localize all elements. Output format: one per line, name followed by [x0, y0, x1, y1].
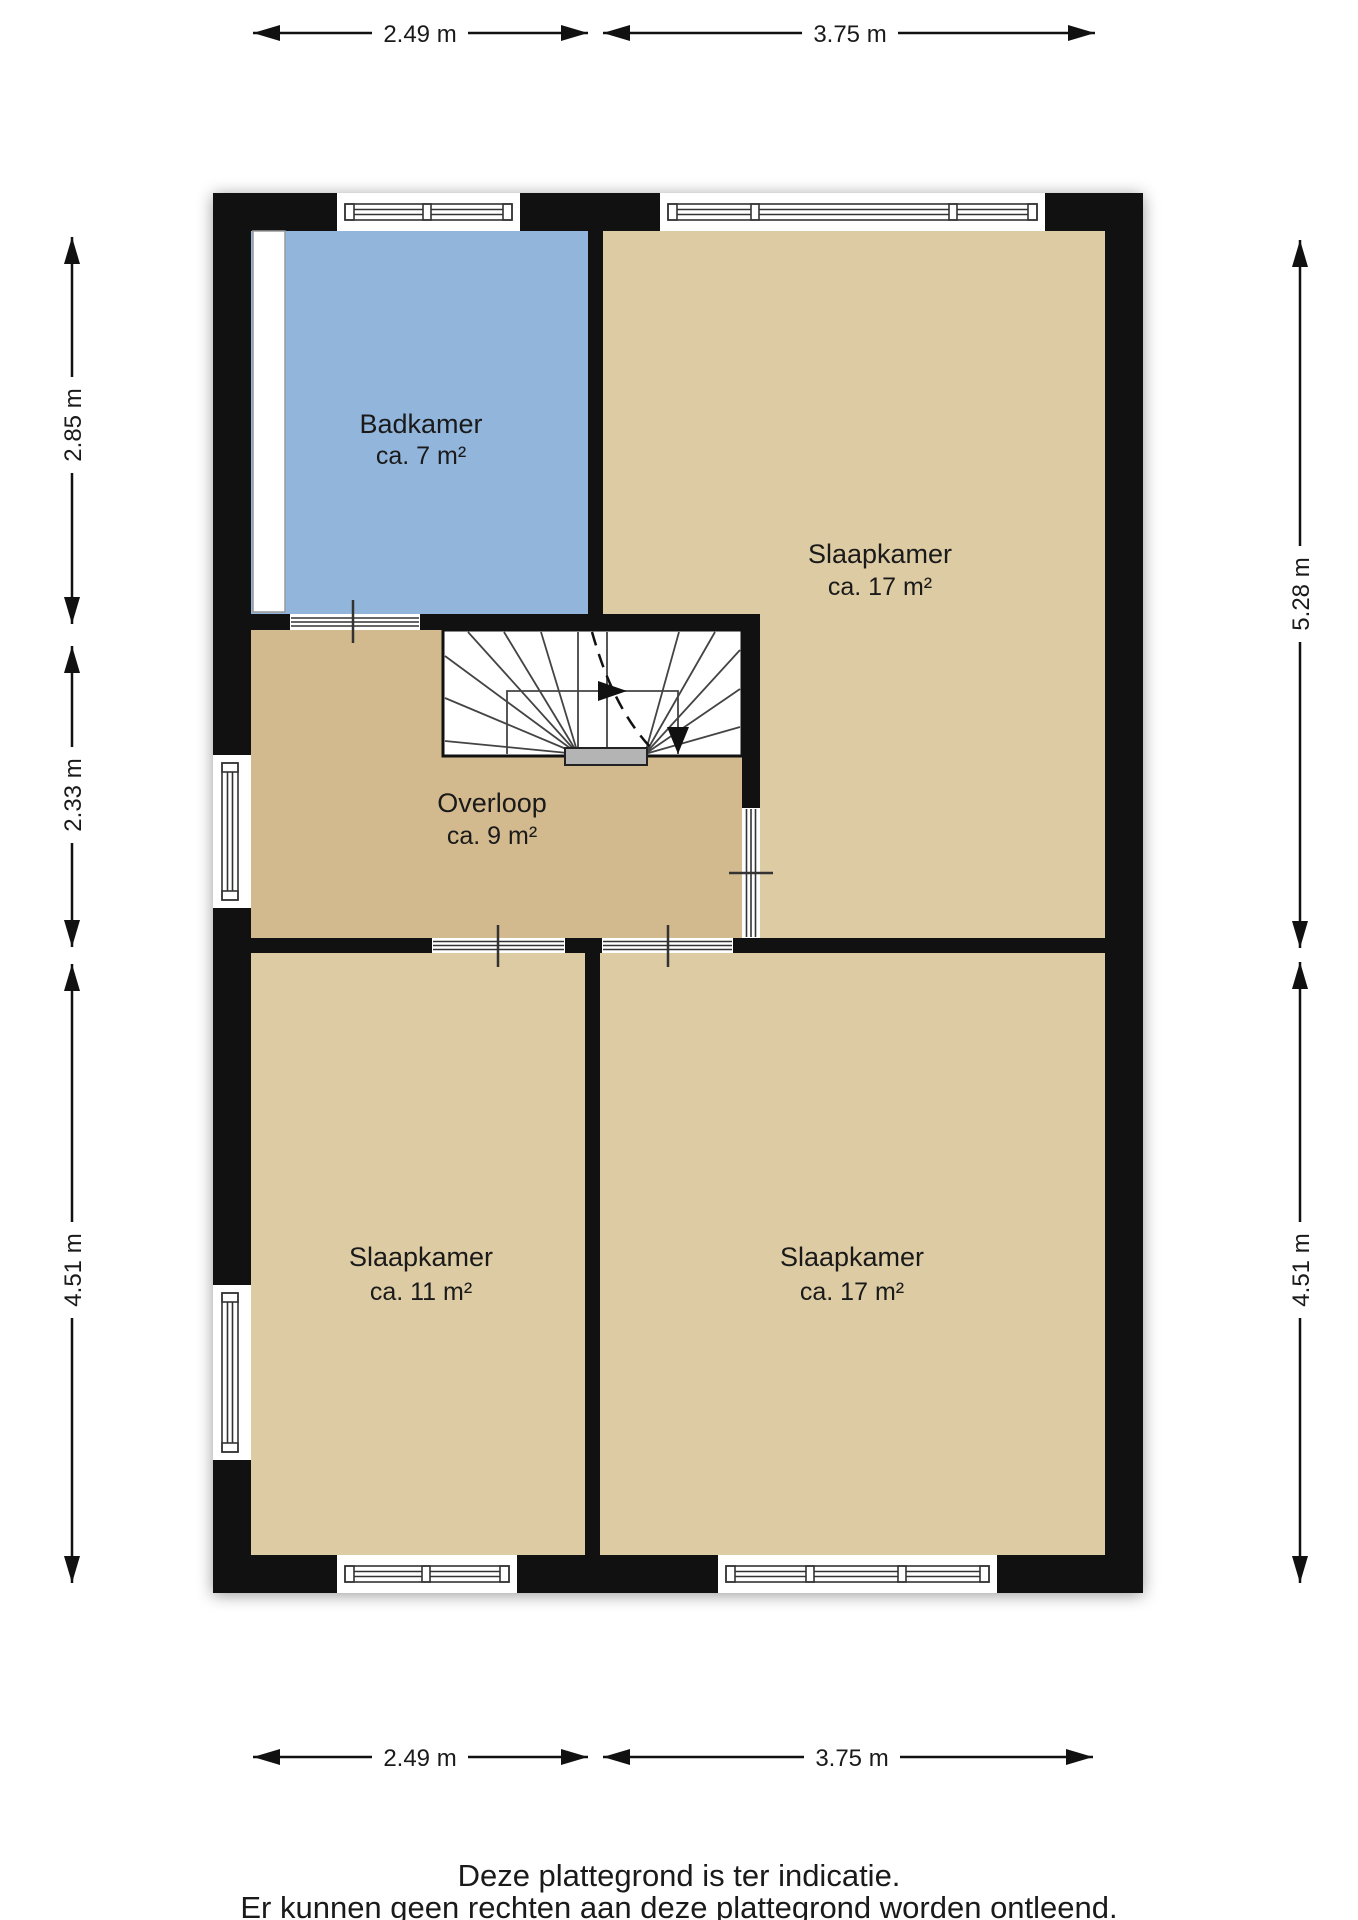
staircase: [443, 630, 742, 765]
disclaimer-line-1: Deze plattegrond is ter indicatie.: [458, 1858, 901, 1893]
window-slaapkamer-top: [660, 193, 1045, 231]
dim-right-1: 5.28 m: [1288, 557, 1315, 630]
dim-left-3: 4.51 m: [60, 1233, 87, 1306]
dimension-left: 2.85 m 2.33 m 4.51 m: [52, 237, 92, 1583]
window-slaapkamer-left-bottom: [337, 1555, 517, 1593]
dim-bottom-right: 3.75 m: [815, 1745, 888, 1772]
stairs-first-step: [565, 748, 647, 765]
dimension-bottom: 2.49 m 3.75 m: [253, 1738, 1093, 1776]
label-badkamer: Badkamer: [359, 409, 482, 439]
disclaimer: Deze plattegrond is ter indicatie. Er ku…: [240, 1858, 1117, 1920]
label-slaapkamer-top: Slaapkamer: [808, 539, 952, 569]
window-badkamer: [337, 193, 520, 231]
dim-top-left: 2.49 m: [383, 21, 456, 48]
label-slaapkamer-left: Slaapkamer: [349, 1242, 493, 1272]
area-slaapkamer-top: ca. 17 m²: [828, 573, 932, 601]
dim-top-right: 3.75 m: [813, 21, 886, 48]
window-slaapkamer-right-bottom: [718, 1555, 997, 1593]
plan: Badkamer ca. 7 m² Slaapkamer ca. 17 m² O…: [213, 193, 1143, 1593]
bathroom-shaft-niche: [253, 231, 285, 612]
area-slaapkamer-left: ca. 11 m²: [370, 1278, 472, 1306]
area-badkamer: ca. 7 m²: [376, 442, 466, 470]
dimension-top: 2.49 m 3.75 m: [253, 14, 1095, 52]
disclaimer-line-2: Er kunnen geen rechten aan deze plattegr…: [240, 1890, 1117, 1920]
area-slaapkamer-right: ca. 17 m²: [800, 1278, 904, 1306]
dimension-right: 5.28 m 4.51 m: [1280, 240, 1320, 1583]
area-overloop: ca. 9 m²: [447, 822, 537, 850]
dim-right-2: 4.51 m: [1288, 1233, 1315, 1306]
window-slaapkamer-left-side: [213, 1285, 251, 1460]
window-overloop: [213, 755, 251, 908]
floorplan-page: 2.49 m 3.75 m 2.85 m 2.33 m 4.51 m 5.28 …: [0, 0, 1358, 1920]
label-overloop: Overloop: [437, 788, 547, 818]
floorplan-svg: 2.49 m 3.75 m 2.85 m 2.33 m 4.51 m 5.28 …: [0, 0, 1358, 1920]
dim-bottom-left: 2.49 m: [383, 1745, 456, 1772]
dim-left-1: 2.85 m: [60, 388, 87, 461]
label-slaapkamer-right: Slaapkamer: [780, 1242, 924, 1272]
dim-left-2: 2.33 m: [60, 758, 87, 831]
